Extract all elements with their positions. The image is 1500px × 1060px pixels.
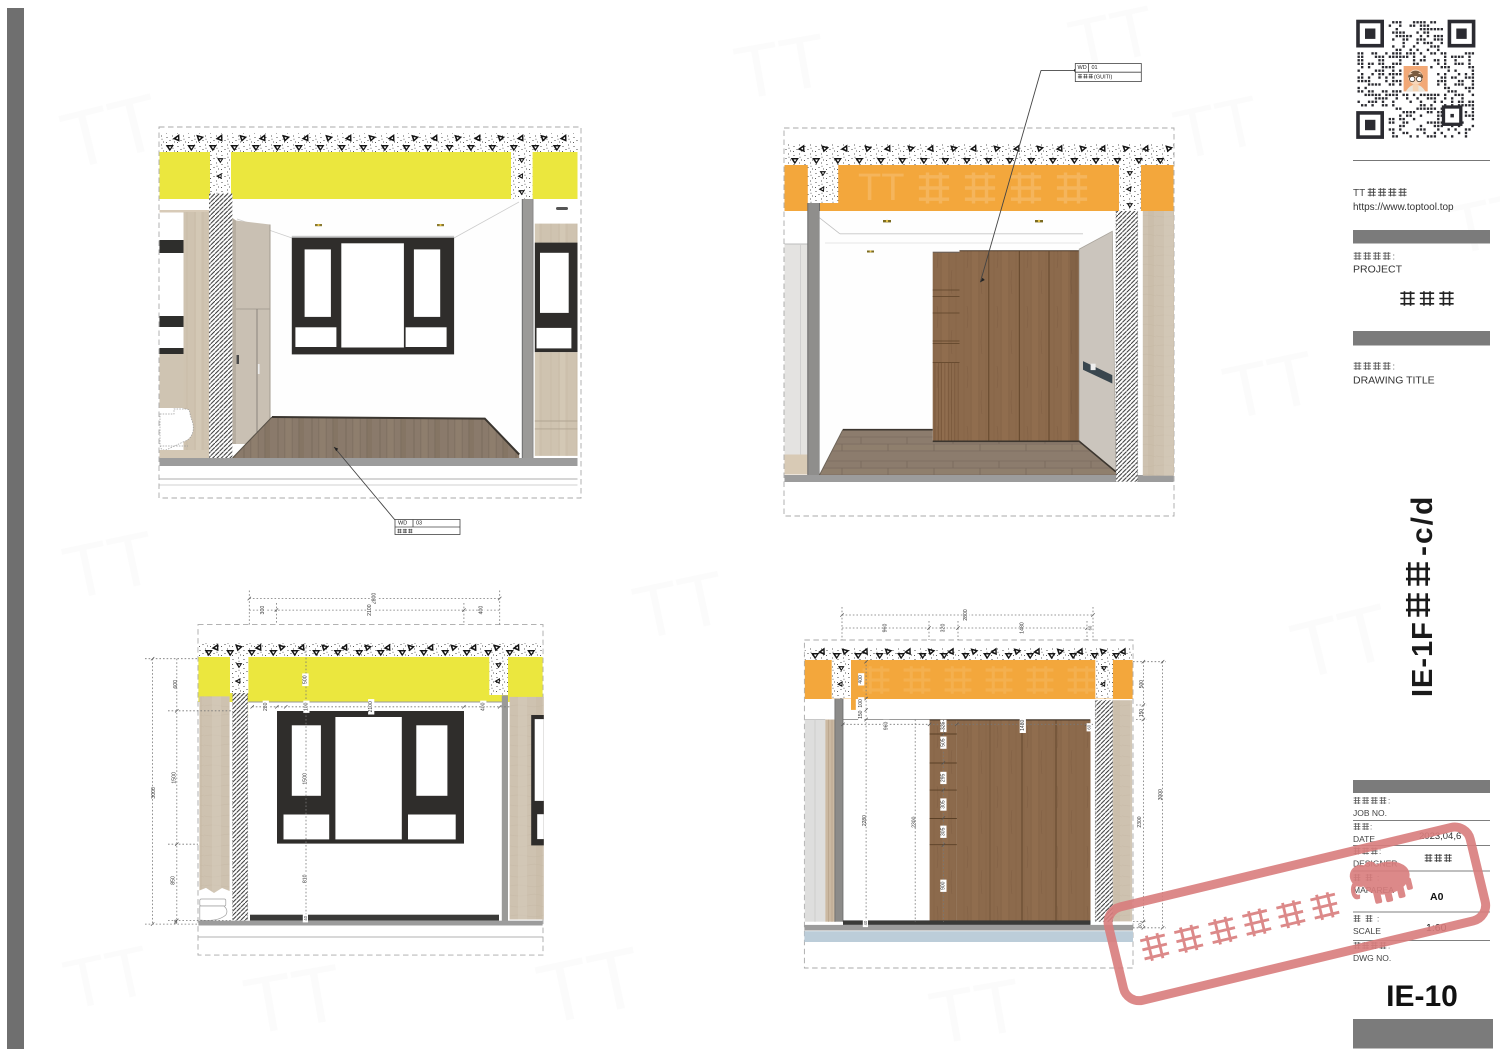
svg-text:2100: 2100	[368, 701, 374, 712]
svg-text:TT: TT	[728, 17, 833, 116]
svg-text:IE-1F: IE-1F	[1407, 621, 1439, 697]
svg-text:WD: WD	[398, 521, 407, 527]
svg-text:150: 150	[858, 710, 864, 719]
svg-text:2100: 2100	[367, 604, 373, 616]
svg-text:295: 295	[940, 774, 946, 783]
svg-text:2300: 2300	[1137, 816, 1143, 827]
svg-text:40: 40	[863, 920, 868, 925]
svg-text:305: 305	[940, 800, 946, 809]
svg-text:1500: 1500	[302, 773, 308, 785]
svg-text::: :	[1388, 797, 1390, 806]
svg-text:100: 100	[303, 702, 309, 711]
svg-text::: :	[1370, 823, 1372, 832]
svg-text:01: 01	[1092, 65, 1098, 71]
svg-text:A0: A0	[1430, 891, 1444, 903]
svg-text:-c/d: -c/d	[1406, 495, 1439, 556]
svg-text:SCALE: SCALE	[1353, 926, 1381, 936]
svg-text:505: 505	[940, 738, 946, 747]
svg-text:2300: 2300	[912, 816, 918, 827]
svg-text:WD: WD	[1078, 65, 1087, 71]
svg-text:400: 400	[480, 702, 486, 711]
svg-text:960: 960	[883, 722, 889, 731]
svg-text:300: 300	[260, 606, 266, 615]
svg-text:60: 60	[1088, 625, 1093, 630]
svg-text:2280: 2280	[862, 815, 868, 826]
svg-text:600: 600	[173, 680, 179, 689]
svg-text:1480: 1480	[1020, 622, 1026, 634]
svg-text:500: 500	[1139, 680, 1145, 689]
svg-text:TT: TT	[923, 962, 1028, 1060]
svg-text:TT: TT	[858, 167, 904, 209]
svg-text:https://www.toptool.top: https://www.toptool.top	[1353, 202, 1454, 213]
svg-text:3000: 3000	[1158, 789, 1164, 800]
svg-text::: :	[1377, 915, 1379, 924]
svg-text:400: 400	[479, 606, 485, 615]
svg-text:280: 280	[263, 702, 269, 711]
svg-text:960: 960	[883, 624, 889, 633]
svg-text:DRAWING TITLE: DRAWING TITLE	[1353, 375, 1435, 387]
svg-text:850: 850	[171, 876, 177, 885]
svg-text:TT: TT	[1353, 188, 1365, 199]
svg-text:50: 50	[173, 919, 178, 924]
svg-text:810: 810	[302, 874, 308, 883]
svg-text:325: 325	[940, 722, 946, 731]
svg-text:150: 150	[1139, 709, 1145, 718]
svg-text:500: 500	[302, 675, 308, 684]
svg-text:40: 40	[303, 915, 308, 920]
svg-text:2800: 2800	[963, 609, 969, 621]
svg-text:DWG NO.: DWG NO.	[1353, 953, 1391, 963]
svg-text:1500: 1500	[172, 772, 178, 784]
svg-text:03: 03	[416, 521, 422, 527]
svg-text:50: 50	[1138, 923, 1143, 928]
svg-text:900: 900	[940, 881, 946, 890]
svg-text:100: 100	[858, 699, 864, 708]
svg-text:JOB NO.: JOB NO.	[1353, 808, 1387, 818]
svg-text:305: 305	[940, 827, 946, 836]
svg-text:1480: 1480	[1020, 720, 1026, 731]
svg-text::: :	[1393, 362, 1396, 372]
svg-text:320: 320	[941, 624, 947, 633]
svg-text:60: 60	[1087, 724, 1092, 729]
svg-text::: :	[1393, 252, 1396, 262]
svg-text:IE-10: IE-10	[1386, 980, 1458, 1013]
svg-text:(GUITI): (GUITI)	[1094, 75, 1112, 81]
svg-text:400: 400	[858, 675, 864, 684]
svg-text:TT: TT	[237, 947, 349, 1052]
svg-text:3000: 3000	[151, 787, 157, 799]
svg-text:PROJECT: PROJECT	[1353, 264, 1403, 276]
